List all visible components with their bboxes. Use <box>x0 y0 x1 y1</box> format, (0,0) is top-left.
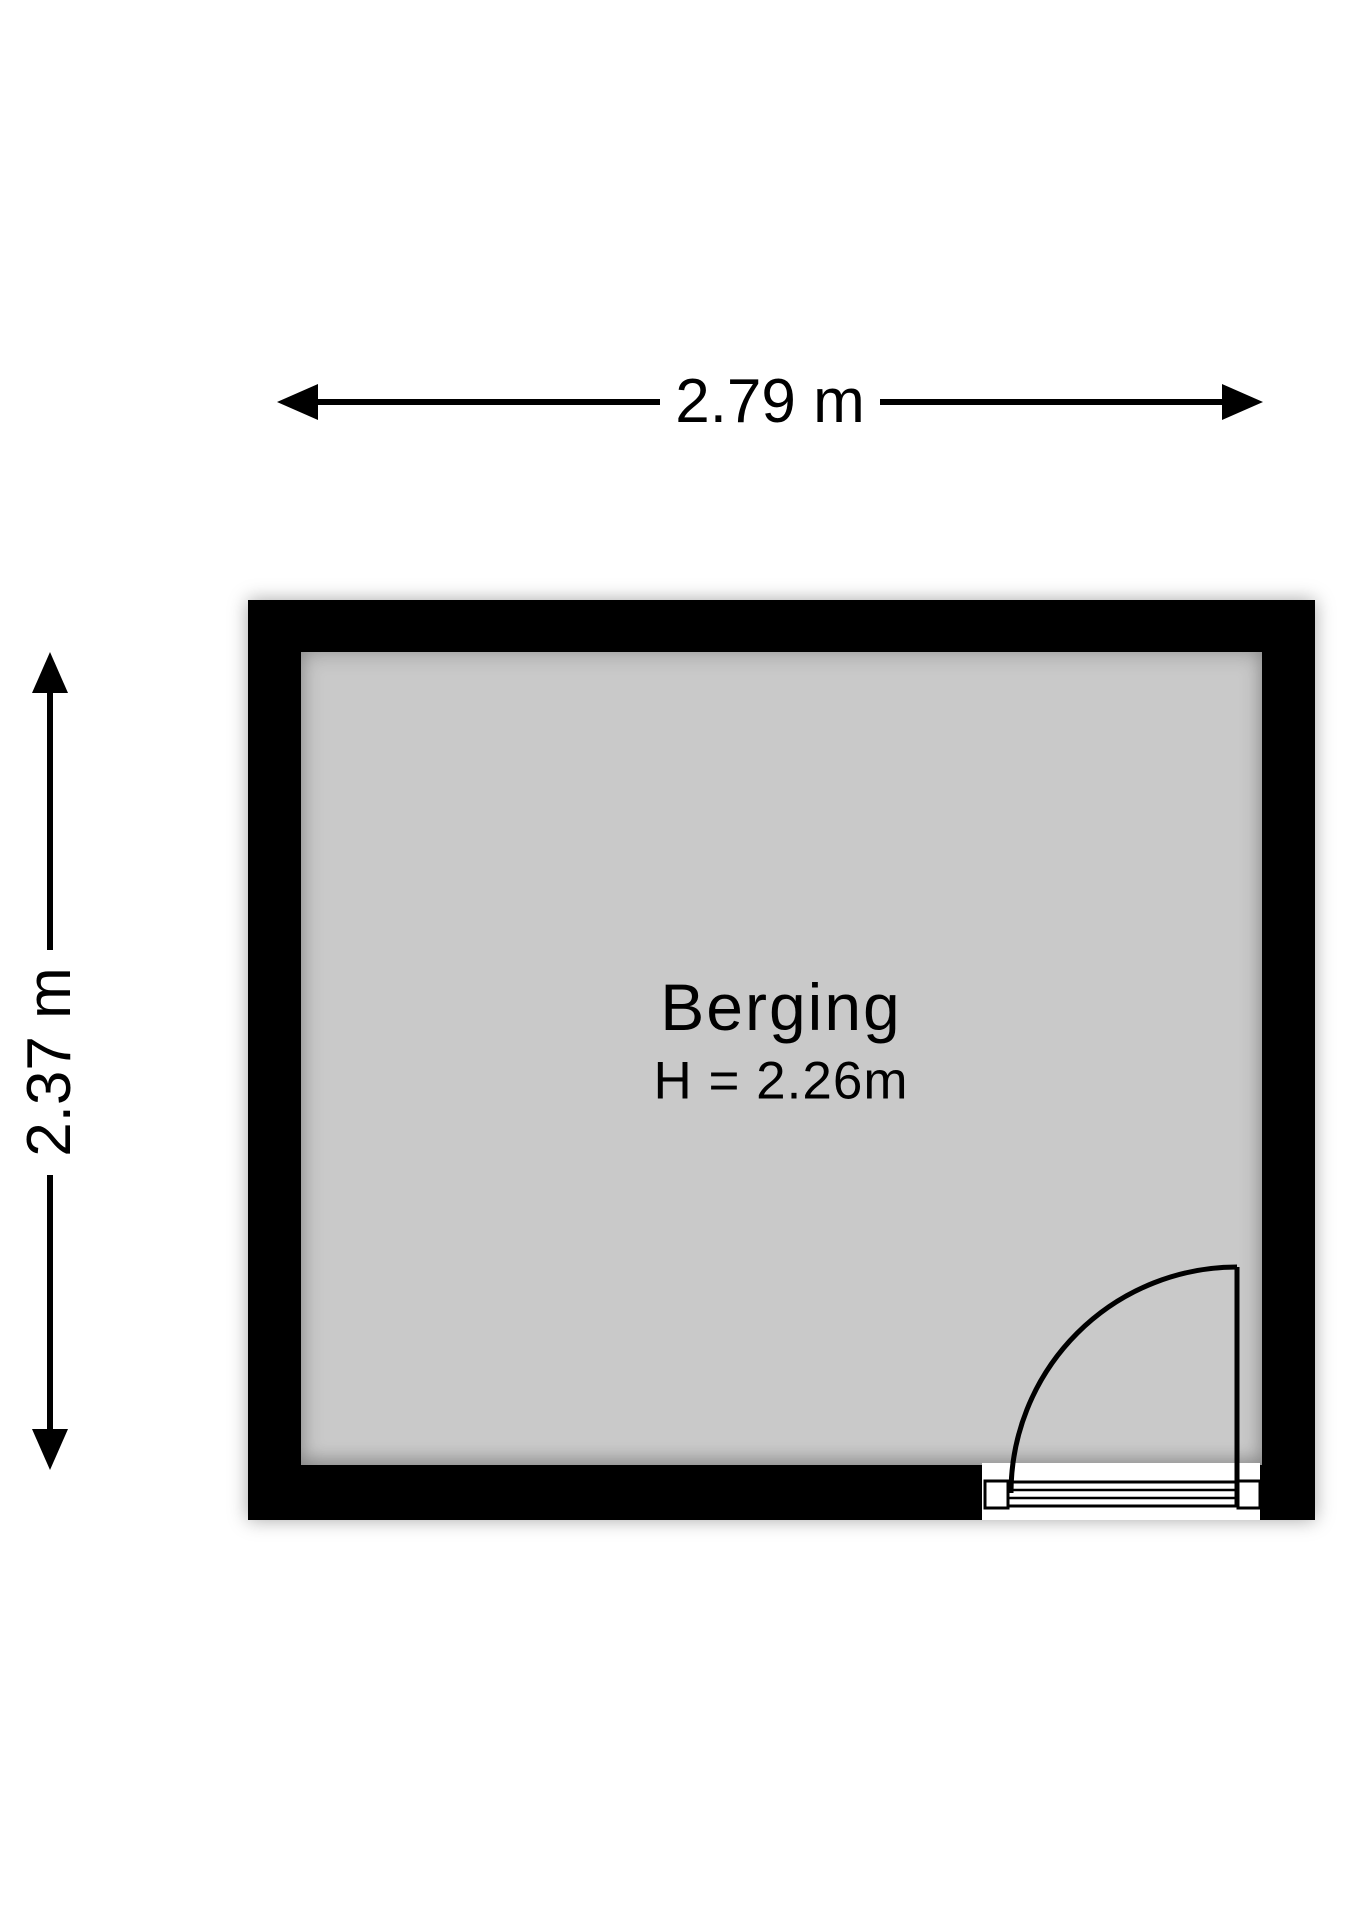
room-ceiling-height-label: H = 2.26m <box>654 1055 909 1108</box>
height-arrow-top-head <box>32 652 68 693</box>
floorplan: 2.79 m 2.37 m Berging H = 2.26m <box>0 0 1358 1920</box>
room-name-label: Berging <box>660 974 902 1040</box>
width-dimension-label: 2.79 m <box>675 371 865 433</box>
height-dimension-label: 2.37 m <box>19 967 81 1157</box>
width-arrow-left-head <box>277 384 318 420</box>
height-arrow-bottom-head <box>32 1429 68 1470</box>
width-arrow-right-head <box>1222 384 1263 420</box>
